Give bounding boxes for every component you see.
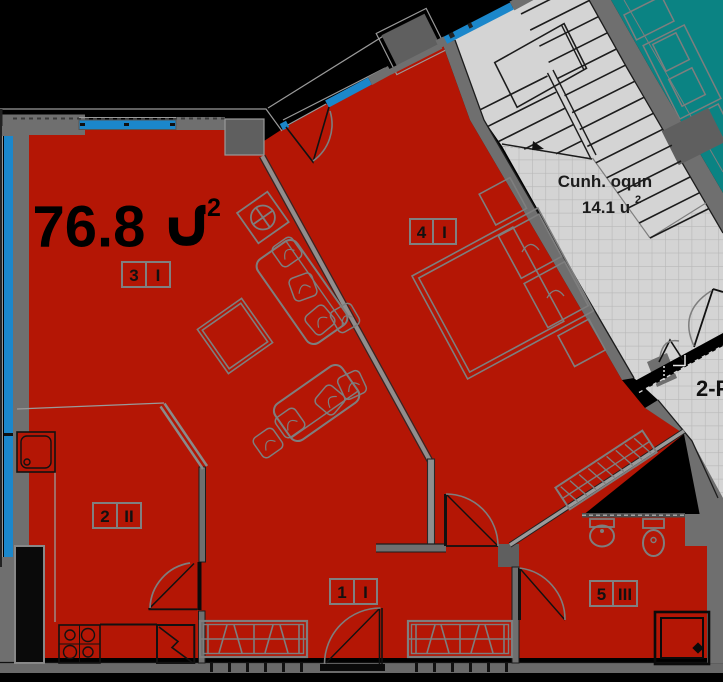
svg-text:2-P: 2-P (696, 376, 723, 401)
svg-text:Cunh. oqun: Cunh. oqun (558, 172, 652, 191)
svg-text:I: I (442, 223, 447, 242)
svg-text:2: 2 (100, 507, 109, 526)
svg-text:4: 4 (417, 223, 427, 242)
svg-text:II: II (124, 507, 133, 526)
svg-text:2: 2 (635, 194, 641, 206)
svg-text:III: III (618, 585, 632, 604)
svg-text:I: I (156, 266, 161, 285)
svg-text:I: I (363, 583, 368, 602)
svg-text:3: 3 (129, 266, 138, 285)
svg-text:5: 5 (597, 585, 606, 604)
svg-text:1: 1 (337, 583, 346, 602)
svg-text:76.8: 76.8 (33, 195, 146, 260)
svg-text:14.1 u: 14.1 u (582, 198, 630, 217)
svg-text:2: 2 (207, 194, 221, 222)
